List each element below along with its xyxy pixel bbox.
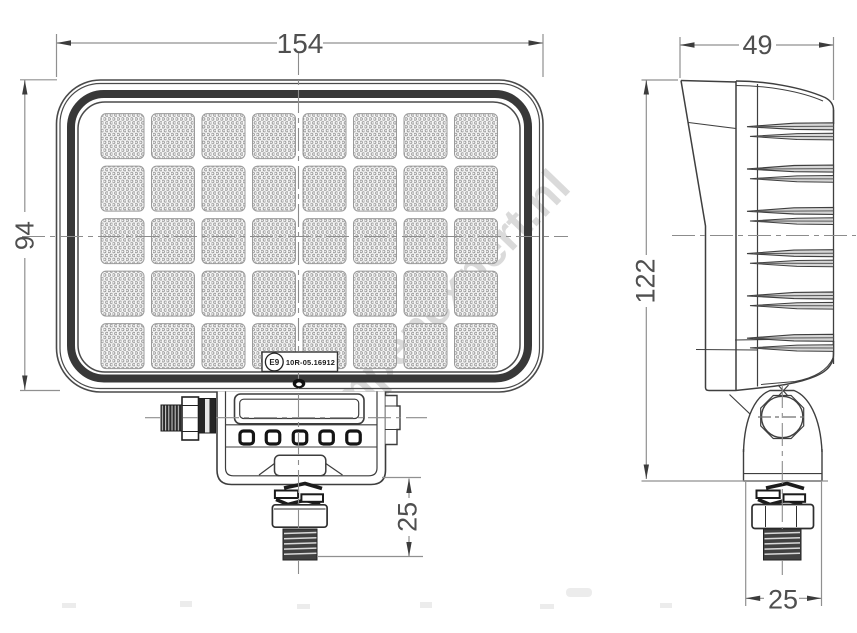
- svg-text:49: 49: [742, 30, 772, 60]
- svg-text:25: 25: [393, 502, 423, 532]
- svg-text:E9: E9: [269, 358, 279, 367]
- svg-text:10R-05.16912: 10R-05.16912: [286, 358, 335, 367]
- svg-text:94: 94: [9, 221, 39, 250]
- svg-text:122: 122: [631, 258, 661, 303]
- svg-text:25: 25: [768, 585, 798, 615]
- svg-text:154: 154: [277, 28, 324, 59]
